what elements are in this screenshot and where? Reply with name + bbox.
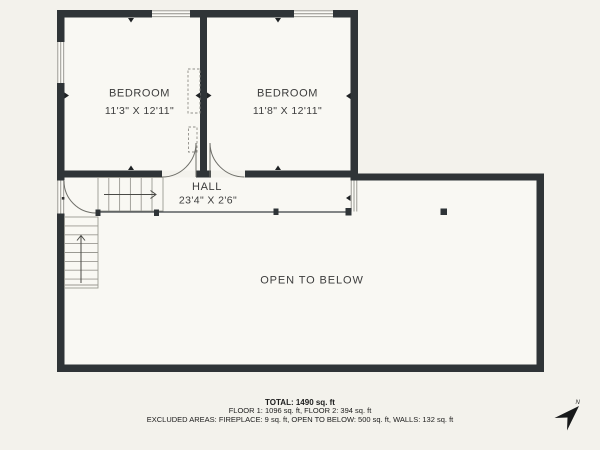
railing-post-2 (154, 210, 159, 217)
bedroom-1-dimensions: 11'3" X 12'11" (105, 105, 174, 117)
floorplan-canvas: BEDROOM 11'3" X 12'11" BEDROOM 11'8" X 1… (0, 0, 600, 450)
railing-post-3 (274, 209, 279, 216)
bedroom-bottom-wall-center (196, 171, 211, 178)
landing-door-hinge-dot (62, 197, 65, 200)
bedroom-2-label: BEDROOM (257, 88, 318, 100)
bedroom-1-label: BEDROOM (109, 88, 170, 100)
hall-dimensions: 23'4" X 2'6" (179, 195, 237, 207)
railing-post-1 (96, 210, 101, 217)
summary-excluded: EXCLUDED AREAS: FIREPLACE: 9 sq. ft, OPE… (0, 416, 600, 425)
bedroom-divider-wall (200, 16, 207, 178)
bedroom-2-dimensions: 11'8" X 12'11" (253, 105, 322, 117)
area-summary: TOTAL: 1490 sq. ft FLOOR 1: 1096 sq. ft,… (0, 398, 600, 424)
window-stub-junction (351, 181, 358, 212)
window-left-bedroom1 (57, 42, 65, 83)
open-to-below-label: OPEN TO BELOW (260, 275, 364, 287)
bedroom-bottom-wall-right (245, 171, 358, 178)
window-top-1 (152, 10, 190, 18)
bottom-wall (57, 365, 544, 373)
window-top-2 (294, 10, 333, 18)
bedroom2-right-wall (351, 10, 359, 181)
open-area-top-wall (351, 174, 545, 181)
fireplace-marker (441, 209, 448, 216)
hall-label: HALL (192, 181, 222, 193)
railing-post-4 (346, 208, 352, 216)
bedroom-bottom-wall-left (57, 171, 162, 178)
right-wall (537, 174, 545, 373)
